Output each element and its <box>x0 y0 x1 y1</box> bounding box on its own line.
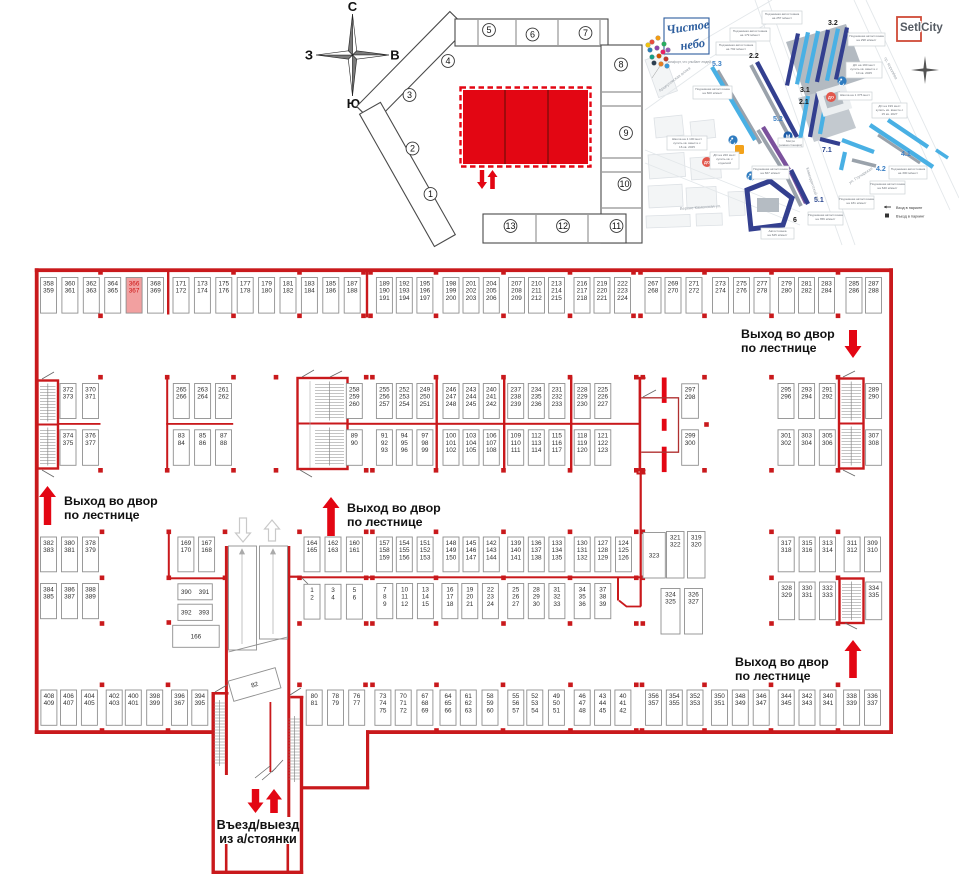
svg-text:4: 4 <box>445 56 450 66</box>
svg-text:99: 99 <box>421 447 429 454</box>
svg-text:7.1: 7.1 <box>822 147 832 154</box>
svg-text:308: 308 <box>868 440 879 447</box>
svg-text:149: 149 <box>446 547 457 554</box>
svg-text:356: 356 <box>648 693 659 700</box>
svg-text:115: 115 <box>552 433 563 440</box>
svg-text:65: 65 <box>444 700 452 707</box>
svg-text:386: 386 <box>64 586 75 593</box>
svg-text:85: 85 <box>199 433 207 440</box>
svg-text:4: 4 <box>331 594 335 601</box>
svg-text:133: 133 <box>552 540 563 547</box>
svg-text:42: 42 <box>619 707 627 714</box>
svg-text:391: 391 <box>199 589 210 596</box>
svg-text:267: 267 <box>648 280 659 287</box>
svg-text:88: 88 <box>220 440 228 447</box>
svg-text:97: 97 <box>421 433 429 440</box>
svg-text:150: 150 <box>446 554 457 561</box>
svg-text:326: 326 <box>688 591 699 598</box>
svg-text:373: 373 <box>63 394 74 401</box>
svg-text:47: 47 <box>579 700 587 707</box>
svg-text:30: 30 <box>533 601 541 608</box>
svg-text:44: 44 <box>599 700 607 707</box>
svg-text:68: 68 <box>421 700 429 707</box>
svg-text:56: 56 <box>512 700 520 707</box>
svg-text:77: 77 <box>353 700 361 707</box>
svg-text:141: 141 <box>510 554 521 561</box>
svg-text:6: 6 <box>793 217 797 224</box>
svg-text:200: 200 <box>446 295 457 302</box>
svg-text:116: 116 <box>552 440 563 447</box>
svg-text:319: 319 <box>691 534 702 541</box>
svg-text:346: 346 <box>756 693 767 700</box>
svg-text:208: 208 <box>511 288 522 295</box>
svg-text:206: 206 <box>486 295 497 302</box>
svg-text:84: 84 <box>178 440 186 447</box>
svg-text:213: 213 <box>551 280 562 287</box>
svg-text:192: 192 <box>399 280 410 287</box>
svg-text:407: 407 <box>63 700 74 707</box>
svg-text:241: 241 <box>486 394 497 401</box>
svg-text:369: 369 <box>150 288 161 295</box>
svg-text:27: 27 <box>512 601 520 608</box>
svg-text:408: 408 <box>44 693 55 700</box>
svg-text:217: 217 <box>577 288 588 295</box>
svg-text:50: 50 <box>553 700 561 707</box>
svg-text:31: 31 <box>553 586 561 593</box>
svg-text:210: 210 <box>531 280 542 287</box>
svg-text:163: 163 <box>328 547 339 554</box>
svg-text:93: 93 <box>381 447 389 454</box>
svg-text:комфорт, что улыбает людей: комфорт, что улыбает людей <box>668 60 711 64</box>
svg-text:286: 286 <box>849 288 860 295</box>
svg-text:105: 105 <box>466 447 477 454</box>
svg-text:380: 380 <box>64 540 75 547</box>
svg-text:142: 142 <box>486 540 497 547</box>
svg-text:4.1: 4.1 <box>901 151 911 158</box>
svg-text:75: 75 <box>379 707 387 714</box>
svg-text:344: 344 <box>781 693 792 700</box>
svg-text:389: 389 <box>85 594 96 601</box>
svg-text:10: 10 <box>619 179 629 189</box>
svg-text:371: 371 <box>85 394 96 401</box>
svg-text:257: 257 <box>379 401 390 408</box>
svg-text:347: 347 <box>756 700 767 707</box>
svg-text:352: 352 <box>690 693 701 700</box>
svg-text:191: 191 <box>379 295 390 302</box>
svg-text:273: 273 <box>715 280 726 287</box>
svg-text:184: 184 <box>304 288 315 295</box>
svg-text:46: 46 <box>579 693 587 700</box>
svg-text:58: 58 <box>486 693 494 700</box>
svg-text:390: 390 <box>181 589 192 596</box>
svg-text:63: 63 <box>465 707 473 714</box>
svg-text:166: 166 <box>191 634 202 641</box>
svg-text:55: 55 <box>512 693 520 700</box>
svg-text:387: 387 <box>64 594 75 601</box>
svg-text:5: 5 <box>353 587 357 594</box>
svg-text:312: 312 <box>847 547 858 554</box>
svg-text:285: 285 <box>849 280 860 287</box>
svg-text:145: 145 <box>466 540 477 547</box>
svg-text:41: 41 <box>619 700 627 707</box>
svg-text:на 257 м/мест: на 257 м/мест <box>772 16 793 20</box>
svg-text:на 179 м/мест: на 179 м/мест <box>740 33 761 37</box>
svg-text:193: 193 <box>399 288 410 295</box>
svg-text:329: 329 <box>781 592 792 599</box>
svg-text:153: 153 <box>420 554 431 561</box>
svg-text:230: 230 <box>577 401 588 408</box>
svg-text:94: 94 <box>401 433 409 440</box>
svg-text:10 кв. 2025: 10 кв. 2025 <box>856 71 872 75</box>
svg-text:SetlCity: SetlCity <box>900 22 943 34</box>
svg-text:353: 353 <box>690 700 701 707</box>
svg-text:266: 266 <box>176 394 187 401</box>
svg-text:214: 214 <box>551 288 562 295</box>
svg-text:38: 38 <box>599 594 607 601</box>
svg-text:336: 336 <box>867 693 878 700</box>
svg-text:24: 24 <box>487 601 495 608</box>
svg-text:26: 26 <box>512 594 520 601</box>
svg-text:349: 349 <box>735 700 746 707</box>
svg-text:147: 147 <box>466 554 477 561</box>
svg-text:111: 111 <box>511 447 521 454</box>
svg-text:296: 296 <box>781 394 792 401</box>
svg-text:275: 275 <box>736 280 747 287</box>
svg-text:151: 151 <box>420 540 431 547</box>
svg-text:на 356 м/мест: на 356 м/мест <box>815 217 836 221</box>
svg-text:379: 379 <box>85 547 96 554</box>
svg-text:372: 372 <box>63 386 74 393</box>
svg-text:239: 239 <box>510 401 521 408</box>
svg-text:229: 229 <box>577 394 588 401</box>
svg-text:351: 351 <box>714 700 725 707</box>
svg-text:378: 378 <box>85 540 96 547</box>
svg-text:299: 299 <box>685 433 696 440</box>
svg-text:86: 86 <box>199 440 207 447</box>
svg-text:320: 320 <box>691 542 702 549</box>
svg-text:194: 194 <box>399 295 410 302</box>
svg-text:327: 327 <box>688 599 699 606</box>
svg-text:6: 6 <box>530 30 535 40</box>
svg-text:392: 392 <box>181 610 192 617</box>
svg-text:7: 7 <box>583 28 588 38</box>
svg-text:313: 313 <box>822 540 833 547</box>
svg-text:218: 218 <box>577 295 588 302</box>
svg-text:276: 276 <box>736 288 747 295</box>
svg-text:283: 283 <box>821 280 832 287</box>
svg-text:292: 292 <box>822 394 833 401</box>
svg-text:302: 302 <box>781 440 792 447</box>
svg-text:406: 406 <box>63 693 74 700</box>
svg-text:402: 402 <box>109 693 120 700</box>
svg-text:350: 350 <box>714 693 725 700</box>
svg-text:175: 175 <box>218 280 229 287</box>
svg-text:261: 261 <box>218 386 229 393</box>
svg-text:224: 224 <box>617 295 628 302</box>
svg-text:Выход во двор: Выход во двор <box>735 655 829 669</box>
svg-text:на 181 м/мест: на 181 м/мест <box>846 201 867 205</box>
svg-text:317: 317 <box>781 540 792 547</box>
svg-text:131: 131 <box>577 547 588 554</box>
svg-text:394: 394 <box>194 693 205 700</box>
svg-text:220: 220 <box>597 288 608 295</box>
svg-text:309: 309 <box>867 540 878 547</box>
svg-text:277: 277 <box>757 280 768 287</box>
svg-text:118: 118 <box>577 433 588 440</box>
svg-text:169: 169 <box>181 540 192 547</box>
svg-text:370: 370 <box>85 386 96 393</box>
svg-text:366: 366 <box>129 280 140 287</box>
svg-text:360: 360 <box>65 280 76 287</box>
svg-text:205: 205 <box>486 288 497 295</box>
svg-text:187: 187 <box>347 280 358 287</box>
svg-text:335: 335 <box>868 592 879 599</box>
svg-text:125: 125 <box>618 547 629 554</box>
svg-text:333: 333 <box>822 592 833 599</box>
svg-text:Выход во двор: Выход во двор <box>741 327 835 341</box>
svg-text:33: 33 <box>553 601 561 608</box>
svg-text:106: 106 <box>486 433 497 440</box>
svg-text:216: 216 <box>577 280 588 287</box>
svg-text:294: 294 <box>801 394 812 401</box>
svg-text:Выход во двор: Выход во двор <box>64 494 158 508</box>
svg-text:Ю: Ю <box>347 96 360 111</box>
svg-text:155: 155 <box>399 547 410 554</box>
svg-text:104: 104 <box>466 440 477 447</box>
svg-text:70: 70 <box>400 693 408 700</box>
svg-text:281: 281 <box>801 280 812 287</box>
svg-text:368: 368 <box>150 280 161 287</box>
svg-text:209: 209 <box>511 295 522 302</box>
svg-text:39: 39 <box>599 601 607 608</box>
svg-text:101: 101 <box>446 440 457 447</box>
svg-text:83: 83 <box>178 433 186 440</box>
svg-text:78: 78 <box>332 693 340 700</box>
svg-text:67: 67 <box>421 693 429 700</box>
svg-text:306: 306 <box>822 440 833 447</box>
svg-text:199: 199 <box>446 288 457 295</box>
svg-text:341: 341 <box>823 700 834 707</box>
svg-text:382: 382 <box>43 540 54 547</box>
svg-text:95: 95 <box>401 440 409 447</box>
svg-text:236: 236 <box>531 401 542 408</box>
svg-text:18: 18 <box>446 601 454 608</box>
svg-text:403: 403 <box>109 700 120 707</box>
svg-text:270: 270 <box>668 288 679 295</box>
svg-text:207: 207 <box>511 280 522 287</box>
svg-text:234: 234 <box>531 386 542 393</box>
svg-text:225: 225 <box>597 386 608 393</box>
svg-text:135: 135 <box>552 554 563 561</box>
svg-text:195: 195 <box>420 280 431 287</box>
svg-text:170: 170 <box>181 547 192 554</box>
svg-text:5.2: 5.2 <box>773 116 783 123</box>
svg-text:242: 242 <box>486 401 497 408</box>
svg-text:127: 127 <box>597 540 608 547</box>
svg-text:36: 36 <box>579 601 587 608</box>
svg-text:203: 203 <box>466 295 477 302</box>
svg-text:293: 293 <box>801 386 812 393</box>
svg-text:355: 355 <box>669 700 680 707</box>
svg-text:53: 53 <box>531 700 539 707</box>
svg-text:32: 32 <box>553 594 561 601</box>
svg-text:89: 89 <box>351 433 359 440</box>
svg-text:254: 254 <box>399 401 410 408</box>
svg-text:282: 282 <box>801 288 812 295</box>
svg-text:119: 119 <box>577 440 588 447</box>
svg-text:91: 91 <box>381 433 389 440</box>
svg-text:43: 43 <box>599 693 607 700</box>
svg-text:71: 71 <box>400 700 408 707</box>
svg-text:280: 280 <box>781 288 792 295</box>
svg-text:114: 114 <box>531 447 542 454</box>
svg-text:298: 298 <box>685 394 696 401</box>
svg-text:23: 23 <box>487 594 495 601</box>
svg-text:136: 136 <box>531 540 542 547</box>
svg-text:279: 279 <box>781 280 792 287</box>
svg-text:381: 381 <box>64 547 75 554</box>
svg-text:110: 110 <box>511 440 522 447</box>
svg-text:124: 124 <box>618 540 629 547</box>
svg-text:35: 35 <box>579 594 587 601</box>
svg-text:253: 253 <box>399 394 410 401</box>
svg-text:396: 396 <box>174 693 185 700</box>
svg-text:108: 108 <box>486 447 497 454</box>
svg-text:на 625 м/мест: на 625 м/мест <box>767 233 788 237</box>
svg-text:304: 304 <box>801 440 812 447</box>
svg-text:244: 244 <box>466 394 477 401</box>
svg-text:167: 167 <box>201 540 212 547</box>
svg-text:3: 3 <box>331 587 335 594</box>
svg-text:64: 64 <box>444 693 452 700</box>
svg-text:240: 240 <box>486 386 497 393</box>
svg-text:190: 190 <box>379 288 390 295</box>
svg-text:156: 156 <box>399 554 410 561</box>
svg-text:362: 362 <box>86 280 97 287</box>
svg-text:249: 249 <box>420 386 431 393</box>
svg-text:180: 180 <box>261 288 272 295</box>
svg-text:48: 48 <box>579 707 587 714</box>
svg-text:237: 237 <box>510 386 521 393</box>
svg-text:238: 238 <box>510 394 521 401</box>
svg-text:227: 227 <box>597 401 608 408</box>
svg-text:181: 181 <box>283 280 294 287</box>
svg-text:287: 287 <box>868 280 879 287</box>
svg-text:92: 92 <box>381 440 389 447</box>
svg-text:384: 384 <box>43 586 54 593</box>
svg-text:197: 197 <box>420 295 431 302</box>
svg-text:Вход в паркинг: Вход в паркинг <box>896 206 923 210</box>
svg-text:215: 215 <box>551 295 562 302</box>
svg-text:383: 383 <box>43 547 54 554</box>
svg-text:328: 328 <box>781 585 792 592</box>
svg-text:2: 2 <box>310 594 314 601</box>
svg-text:З: З <box>305 48 313 63</box>
svg-text:331: 331 <box>802 592 813 599</box>
svg-text:265: 265 <box>176 386 187 393</box>
svg-text:(новая станция): (новая станция) <box>779 143 802 147</box>
svg-text:123: 123 <box>597 447 608 454</box>
svg-text:223: 223 <box>617 288 628 295</box>
svg-text:2: 2 <box>410 144 415 154</box>
svg-text:20: 20 <box>466 594 474 601</box>
svg-text:247: 247 <box>446 394 457 401</box>
svg-text:по лестнице: по лестнице <box>64 508 140 522</box>
svg-text:172: 172 <box>176 288 187 295</box>
svg-text:16: 16 <box>446 586 454 593</box>
svg-text:69: 69 <box>421 707 429 714</box>
svg-text:34: 34 <box>579 586 587 593</box>
svg-text:51: 51 <box>553 707 561 714</box>
svg-text:1: 1 <box>310 587 314 594</box>
svg-text:248: 248 <box>446 401 457 408</box>
svg-text:204: 204 <box>486 280 497 287</box>
svg-text:342: 342 <box>802 693 813 700</box>
svg-text:260: 260 <box>349 401 360 408</box>
svg-text:258: 258 <box>349 386 360 393</box>
svg-text:15 кв. 2027: 15 кв. 2027 <box>882 112 898 116</box>
svg-text:57: 57 <box>512 707 520 714</box>
svg-text:19: 19 <box>466 586 474 593</box>
svg-text:177: 177 <box>240 280 251 287</box>
svg-text:10: 10 <box>401 586 409 593</box>
svg-text:318: 318 <box>781 547 792 554</box>
svg-text:139: 139 <box>510 540 521 547</box>
svg-text:2.1: 2.1 <box>799 99 809 106</box>
svg-text:109: 109 <box>510 433 521 440</box>
svg-text:112: 112 <box>531 433 542 440</box>
svg-text:160: 160 <box>349 540 360 547</box>
svg-text:404: 404 <box>84 693 95 700</box>
svg-text:165: 165 <box>307 547 318 554</box>
svg-text:8: 8 <box>618 60 623 70</box>
svg-text:61: 61 <box>465 693 473 700</box>
svg-text:338: 338 <box>846 693 857 700</box>
svg-text:146: 146 <box>466 547 477 554</box>
svg-text:374: 374 <box>63 433 74 440</box>
svg-text:305: 305 <box>822 433 833 440</box>
svg-text:330: 330 <box>802 585 813 592</box>
svg-text:3.1: 3.1 <box>800 87 810 94</box>
svg-text:126: 126 <box>618 554 629 561</box>
svg-text:129: 129 <box>597 554 608 561</box>
svg-text:49: 49 <box>553 693 561 700</box>
svg-text:310: 310 <box>867 547 878 554</box>
svg-text:60: 60 <box>486 707 494 714</box>
svg-text:357: 357 <box>648 700 659 707</box>
svg-text:301: 301 <box>781 433 792 440</box>
svg-text:316: 316 <box>802 547 813 554</box>
svg-text:364: 364 <box>107 280 118 287</box>
svg-text:303: 303 <box>801 433 812 440</box>
svg-text:400: 400 <box>128 693 139 700</box>
svg-text:98: 98 <box>421 440 429 447</box>
svg-text:161: 161 <box>349 547 360 554</box>
svg-text:96: 96 <box>401 447 409 454</box>
svg-text:221: 221 <box>597 295 608 302</box>
svg-text:256: 256 <box>379 394 390 401</box>
svg-text:321: 321 <box>670 534 681 541</box>
svg-text:144: 144 <box>486 554 497 561</box>
svg-text:323: 323 <box>649 553 660 560</box>
svg-text:274: 274 <box>715 288 726 295</box>
svg-text:185: 185 <box>325 280 336 287</box>
svg-text:183: 183 <box>304 280 315 287</box>
svg-text:250: 250 <box>420 394 431 401</box>
svg-text:201: 201 <box>466 280 477 287</box>
svg-text:159: 159 <box>379 554 390 561</box>
svg-text:ДО: ДО <box>828 95 834 100</box>
